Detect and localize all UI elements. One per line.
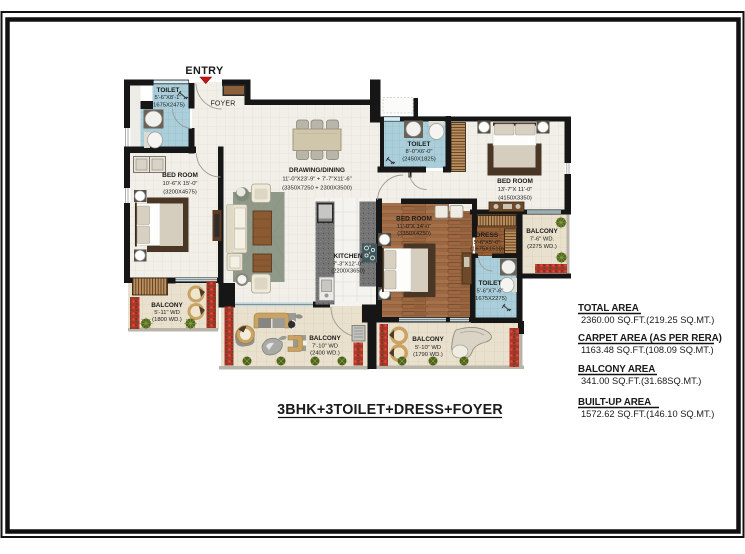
svg-text:2360.00 SQ.FT.(219.25 SQ.MT.): 2360.00 SQ.FT.(219.25 SQ.MT.)	[581, 315, 714, 325]
svg-text:BALCONY: BALCONY	[309, 335, 341, 342]
svg-text:(3200X4575): (3200X4575)	[163, 190, 197, 196]
svg-text:11'-0"X 14'-0": 11'-0"X 14'-0"	[397, 224, 432, 230]
svg-text:8'-0"X6'-0": 8'-0"X6'-0"	[406, 149, 433, 155]
svg-text:DRAWING/DINING: DRAWING/DINING	[289, 167, 345, 174]
svg-text:BED ROOM: BED ROOM	[396, 216, 432, 223]
svg-text:BALCONY: BALCONY	[526, 228, 558, 235]
svg-text:7'-3"X12'-0": 7'-3"X12'-0"	[333, 262, 363, 268]
svg-text:5'-6"X8'-1": 5'-6"X8'-1"	[155, 95, 182, 101]
svg-text:BUILT-UP AREA: BUILT-UP AREA	[578, 397, 651, 408]
svg-text:(2275 WD.): (2275 WD.)	[527, 244, 557, 250]
svg-text:7'-6" WD.: 7'-6" WD.	[530, 237, 555, 243]
svg-text:5'-6"X5'-0": 5'-6"X5'-0"	[474, 240, 501, 246]
svg-text:(3350X7250 + 2300X3500): (3350X7250 + 2300X3500)	[282, 186, 352, 192]
svg-text:(2200X3650): (2200X3650)	[331, 269, 365, 275]
svg-text:BALCONY: BALCONY	[151, 302, 183, 309]
svg-text:3BHK+3TOILET+DRESS+FOYER: 3BHK+3TOILET+DRESS+FOYER	[277, 402, 503, 418]
svg-text:(2450X1825): (2450X1825)	[402, 157, 436, 163]
svg-text:(4150X3350): (4150X3350)	[498, 196, 532, 202]
svg-text:10'-6"X 15'-0": 10'-6"X 15'-0"	[162, 181, 197, 187]
svg-text:(1675X2275): (1675X2275)	[473, 296, 507, 302]
svg-text:(1800 WD.): (1800 WD.)	[152, 317, 182, 323]
svg-text:ENTRY: ENTRY	[185, 65, 224, 77]
svg-text:TOTAL AREA: TOTAL AREA	[578, 303, 639, 314]
svg-text:7'-10" WD: 7'-10" WD	[312, 344, 338, 350]
svg-text:BED ROOM: BED ROOM	[162, 172, 198, 179]
svg-text:5'-11" WD: 5'-11" WD	[154, 310, 180, 316]
svg-text:KITCHEN: KITCHEN	[334, 253, 363, 260]
svg-text:FOYER: FOYER	[210, 101, 235, 108]
svg-text:TOILET: TOILET	[408, 141, 431, 148]
svg-text:(3350X4250): (3350X4250)	[397, 231, 431, 237]
svg-text:(1675X2475): (1675X2475)	[151, 103, 185, 109]
svg-text:(1790 WD.): (1790 WD.)	[413, 352, 443, 358]
svg-text:(2400 WD.): (2400 WD.)	[310, 351, 340, 357]
svg-text:5'-6"X7'-6": 5'-6"X7'-6"	[477, 289, 504, 295]
svg-text:BED ROOM: BED ROOM	[497, 178, 533, 185]
svg-text:DRESS: DRESS	[476, 232, 499, 239]
svg-text:13'-7"X 11'-0": 13'-7"X 11'-0"	[498, 187, 533, 193]
svg-text:341.00 SQ.FT.(31.68SQ.MT.): 341.00 SQ.FT.(31.68SQ.MT.)	[581, 376, 701, 386]
svg-text:(1675X1510): (1675X1510)	[470, 247, 504, 253]
svg-text:1163.48 SQ.FT.(108.09 SQ.MT.): 1163.48 SQ.FT.(108.09 SQ.MT.)	[581, 345, 714, 355]
svg-text:TOILET: TOILET	[479, 280, 502, 287]
svg-text:11'-0"X23'-9" + 7'-7"X11'-6": 11'-0"X23'-9" + 7'-7"X11'-6"	[282, 177, 351, 183]
svg-text:5'-10" WD: 5'-10" WD	[415, 345, 441, 351]
svg-text:CARPET AREA (AS PER RERA): CARPET AREA (AS PER RERA)	[578, 333, 722, 344]
svg-text:TOILET: TOILET	[157, 87, 180, 94]
svg-text:BALCONY: BALCONY	[412, 336, 444, 343]
svg-text:BALCONY AREA: BALCONY AREA	[578, 364, 655, 375]
svg-text:1572.62 SQ.FT.(146.10 SQ.MT.): 1572.62 SQ.FT.(146.10 SQ.MT.)	[581, 409, 714, 419]
